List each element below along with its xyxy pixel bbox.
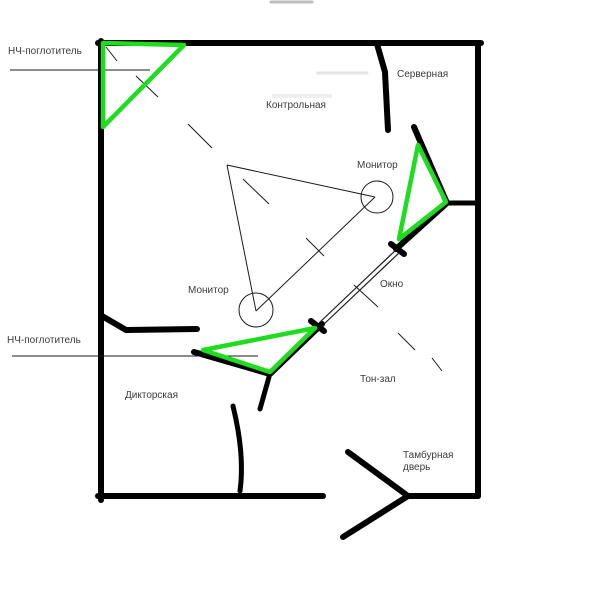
- monitor-top-circle: [361, 181, 393, 213]
- label-control-room: Контрольная: [266, 100, 326, 112]
- label-lf-absorber-top: НЧ-поглотитель: [8, 46, 82, 58]
- label-vestibule-door-line1: Тамбурная: [403, 450, 453, 462]
- announcer-door-arc: [233, 406, 241, 491]
- thin-lines: [10, 47, 442, 371]
- label-server-room: Серверная: [397, 69, 448, 81]
- label-window: Окно: [380, 279, 403, 291]
- listening-triangle-side-top: [227, 165, 375, 197]
- listening-triangle-side-monitor: [256, 197, 375, 311]
- tick-monitor-line: [306, 238, 324, 256]
- label-vestibule-door: Тамбурная дверь: [403, 450, 453, 474]
- control-room-partition: [102, 316, 197, 330]
- label-announcer-room: Дикторская: [125, 390, 178, 402]
- server-room-partition: [377, 44, 388, 130]
- label-lf-absorber-bottom: НЧ-поглотитель: [7, 335, 81, 347]
- floor-plan-drawing: [0, 0, 615, 589]
- label-monitor-bottom: Монитор: [188, 285, 229, 297]
- tick-window-line: [354, 285, 378, 307]
- floor-plan-canvas: НЧ-поглотитель Серверная Контрольная Мон…: [0, 0, 615, 589]
- label-monitor-top: Монитор: [357, 160, 398, 172]
- hatch-mark-4: [243, 179, 269, 204]
- label-live-room: Тон-зал: [360, 374, 396, 386]
- announcer-door-jamb: [260, 377, 269, 409]
- hatch-mark-3: [188, 124, 212, 148]
- label-vestibule-door-line2: дверь: [403, 462, 453, 474]
- hatch-mark-6: [432, 358, 442, 371]
- vestibule-door-arrow: [343, 452, 408, 537]
- hatch-mark-2: [136, 76, 158, 97]
- hatch-mark-1: [106, 47, 117, 61]
- absorber-triangles: [103, 43, 446, 372]
- absorber-triangle-top-left: [103, 43, 184, 127]
- hatch-mark-5: [398, 333, 415, 350]
- erasure-smudges: [271, 2, 367, 96]
